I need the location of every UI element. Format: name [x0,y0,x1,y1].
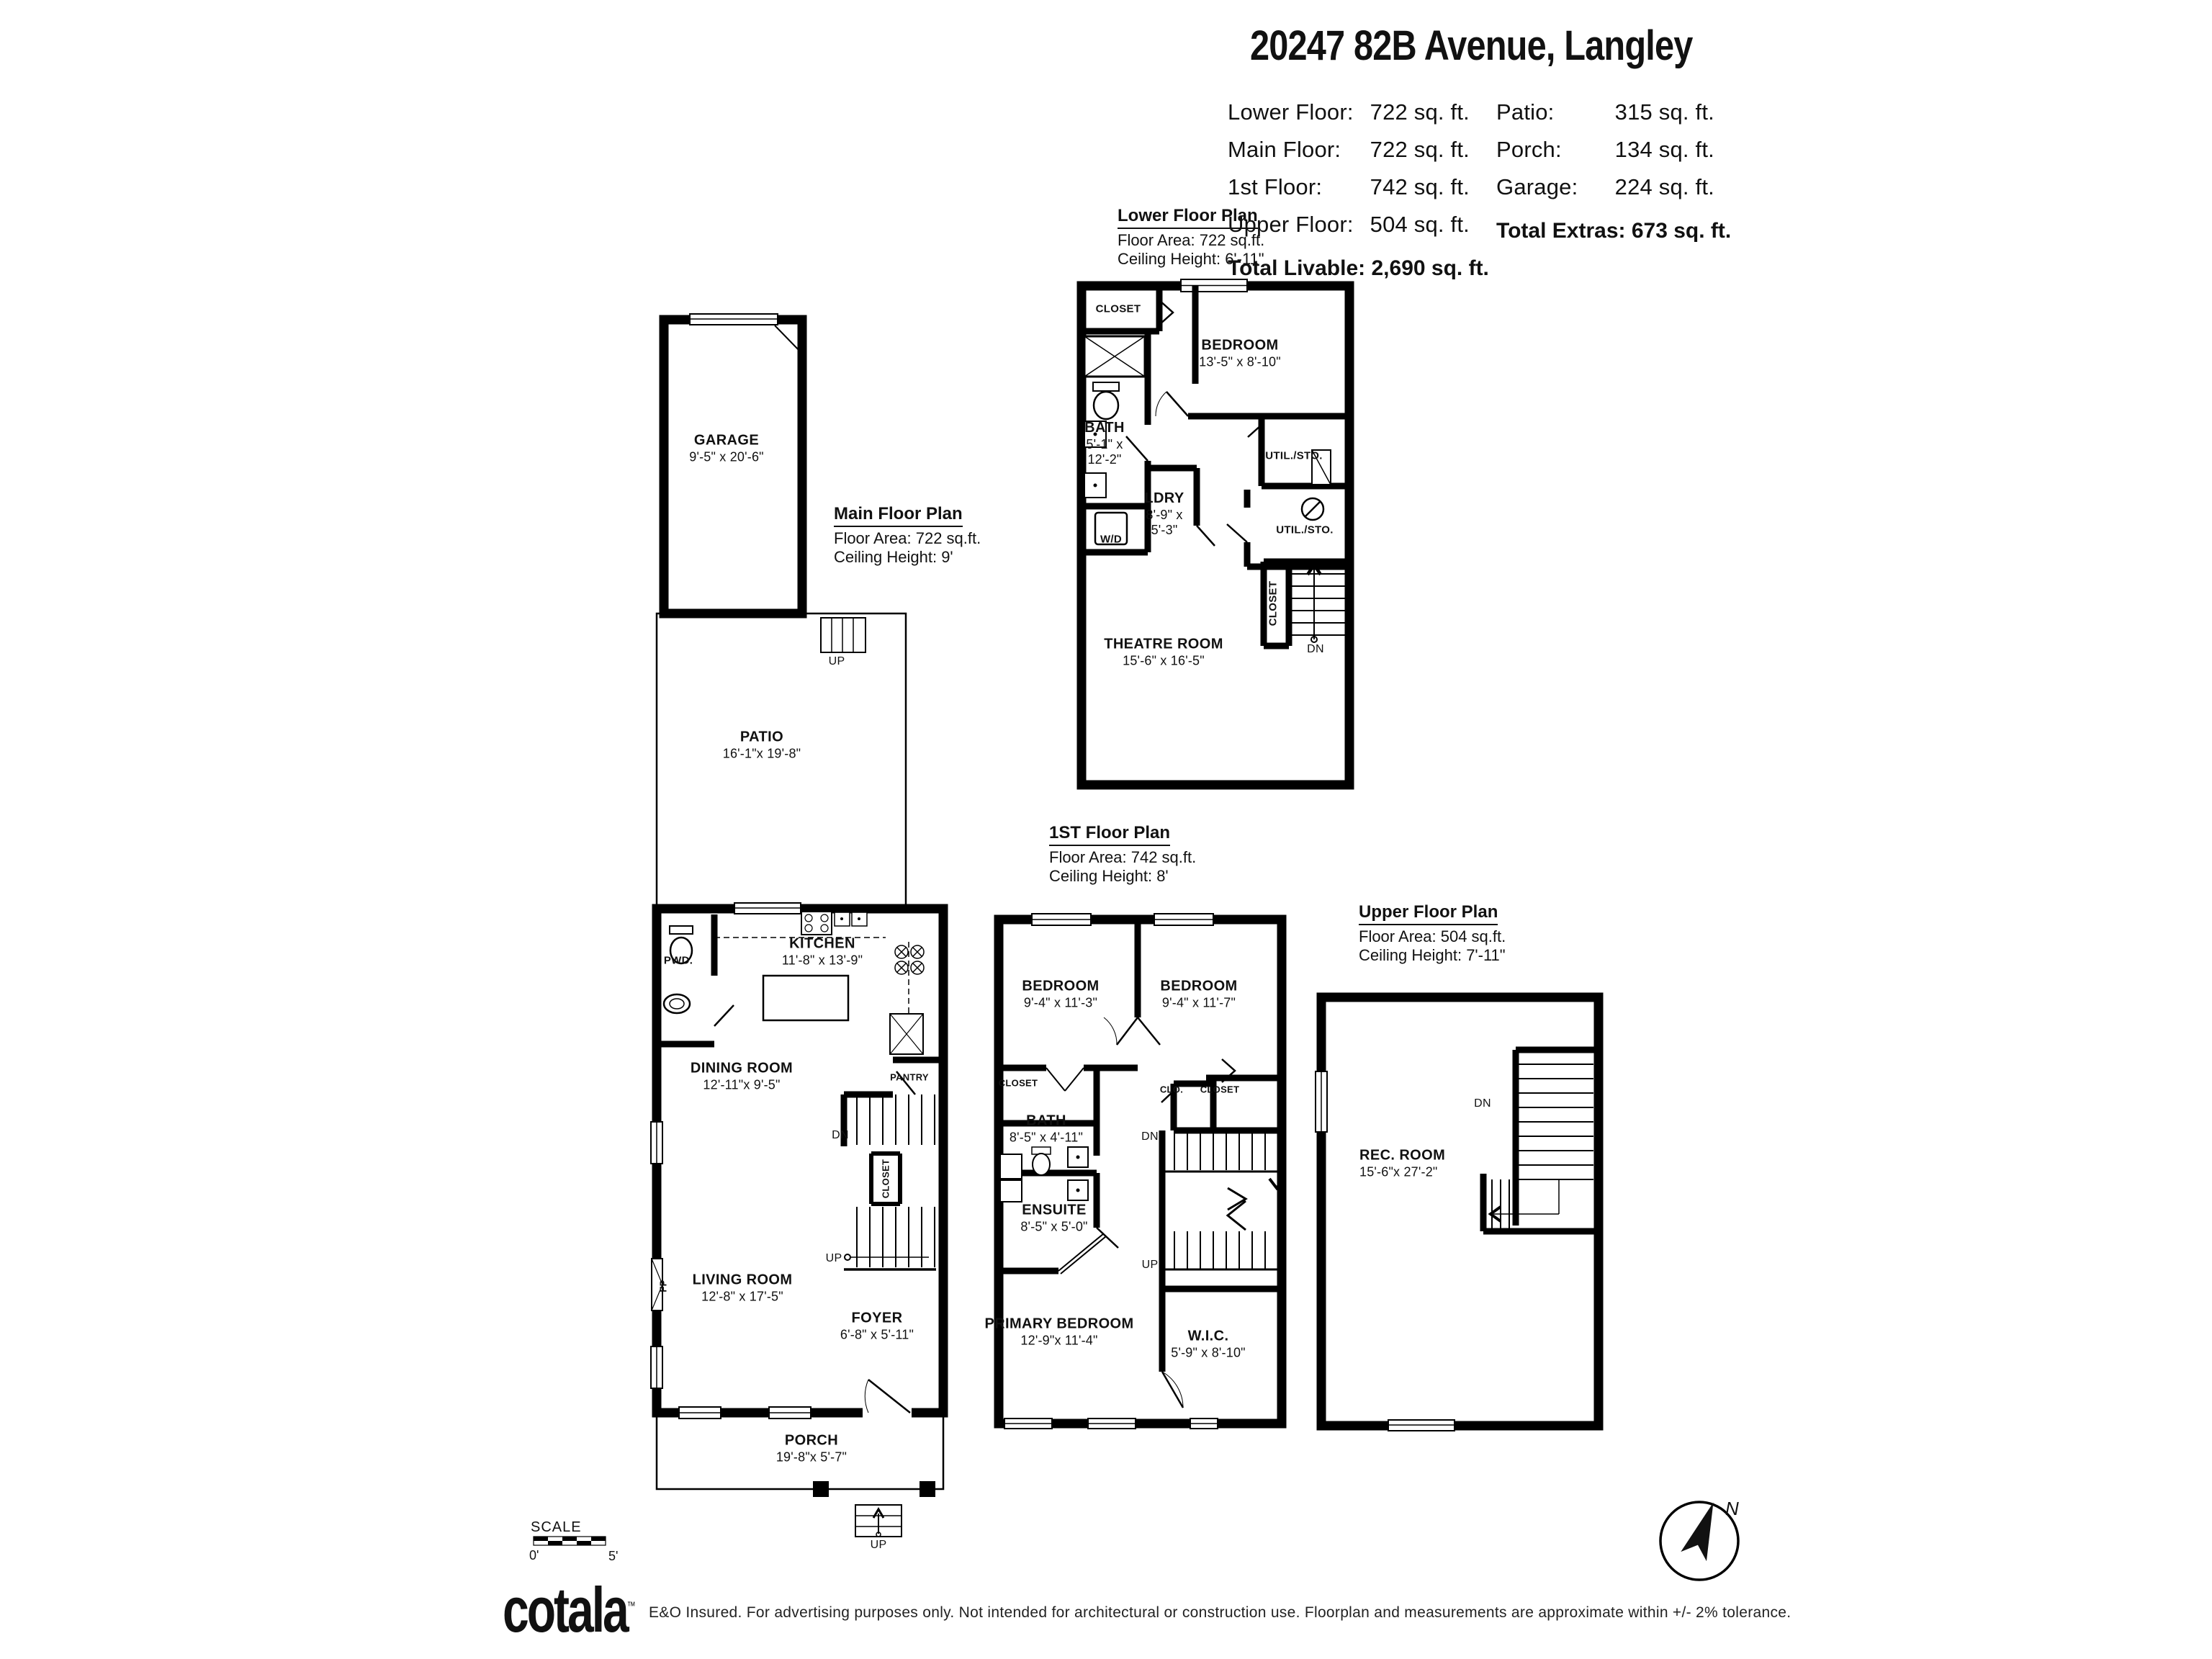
first-up-label: UP [1142,1259,1159,1272]
upper-floor-plan-drawing [1310,986,1613,1447]
bedroom1-label: BEDROOM 9'-4" x 11'-3" [1022,979,1099,1011]
patio-up-label: UP [829,655,845,668]
stat-value: 315 sq. ft. [1615,99,1714,125]
first-closet-left-label: CLOSET [999,1078,1038,1089]
util-sto-label-2: UTIL./STO. [1276,524,1333,536]
clo-label: CLO. [1160,1084,1183,1095]
stat-label: Patio: [1496,99,1554,125]
stat-label: 1st Floor: [1228,174,1322,200]
first-plan-header: 1ST Floor Plan Floor Area: 742 sq.ft. Ce… [1049,823,1196,886]
garage-label: GARAGE 9'-5" x 20'-6" [689,433,764,465]
stat-value: 722 sq. ft. [1370,137,1470,163]
main-up-label: UP [826,1252,842,1265]
dining-room-label: DINING ROOM 12'-11"x 9'-5" [691,1061,793,1093]
stat-value: 224 sq. ft. [1615,174,1714,200]
stat-row: Patio: 315 sq. ft. [1496,94,1714,131]
stat-label: Garage: [1496,174,1578,200]
kitchen-label: KITCHEN 11'-8" x 13'-9" [782,936,863,968]
stat-row: Garage: 224 sq. ft. [1496,168,1714,206]
living-room-label: LIVING ROOM 12'-8" x 17'-5" [693,1272,793,1305]
wic-label: W.I.C. 5'-9" x 8'-10" [1171,1328,1246,1361]
stat-row: Main Floor: 722 sq. ft. [1228,131,1470,168]
disclaimer-text: E&O Insured. For advertising purposes on… [649,1604,1791,1622]
wd-label: W/D [1100,534,1122,546]
scale-end: 5' [608,1549,618,1564]
porch-label: PORCH 19'-8"x 5'-7" [776,1433,847,1465]
bedroom2-label: BEDROOM 9'-4" x 11'-7" [1160,979,1237,1011]
scale-bar [534,1534,613,1550]
lower-stair-closet-label: CLOSET [1267,581,1280,626]
stats-right: Patio: 315 sq. ft. Porch: 134 sq. ft. Ga… [1496,94,1714,206]
ldry-label: LDRY 8'-9" x 5'-3" [1136,490,1193,538]
cotala-logo: cotala™ [503,1578,636,1642]
stat-label: Lower Floor: [1228,99,1354,125]
theatre-room-label: THEATRE ROOM 15'-6" x 16'-5" [1104,637,1223,669]
main-stair-closet-label: CLOSET [881,1159,891,1199]
lower-plan-header: Lower Floor Plan Floor Area: 722 sq.ft. … [1118,206,1264,269]
bath1-label: BATH 8'-5" x 4'-11" [1010,1113,1083,1146]
stat-label: Main Floor: [1228,137,1341,163]
stat-label: Porch: [1496,137,1562,163]
lower-bath-label: BATH 5'-1" x 12'-2" [1071,420,1139,467]
ensuite-label: ENSUITE 8'-5" x 5'-0" [1020,1202,1087,1235]
floorplan-page: 20247 82B Avenue, Langley Lower Floor: 7… [0,0,2212,1659]
main-dn-label: DN [832,1129,849,1142]
lower-closet-label: CLOSET [1096,303,1141,315]
primary-bedroom-label: PRIMARY BEDROOM 12'-9"x 11'-4" [984,1316,1133,1349]
first-closet-right-label: CLOSET [1200,1084,1240,1095]
trademark-symbol: ™ [627,1601,636,1613]
stat-row: Lower Floor: 722 sq. ft. [1228,94,1470,131]
scale-start: 0' [529,1548,539,1563]
first-dn-label: DN [1141,1130,1159,1143]
upper-plan-header: Upper Floor Plan Floor Area: 504 sq.ft. … [1359,902,1506,966]
patio-label: PATIO 16'-1"x 19'-8" [723,729,801,762]
pantry-label: PANTRY [890,1072,929,1083]
foyer-label: FOYER 6'-8" x 5'-11" [840,1310,914,1343]
compass-north-label: N [1725,1498,1739,1520]
pwd-label: PWD. [664,955,693,967]
total-extras: Total Extras: 673 sq. ft. [1496,219,1731,243]
lower-bedroom-label: BEDROOM 13'-5" x 8'-10" [1199,338,1281,370]
rec-room-label: REC. ROOM 15'-6"x 27'-2" [1359,1148,1445,1180]
stat-row: Porch: 134 sq. ft. [1496,131,1714,168]
stat-row: 1st Floor: 742 sq. ft. [1228,168,1470,206]
page-title: 20247 82B Avenue, Langley [1250,22,1692,70]
stat-value: 722 sq. ft. [1370,99,1470,125]
fireplace-label: FP [658,1280,669,1292]
util-sto-label: UTIL./STO. [1265,450,1322,462]
porch-up-label: UP [871,1539,887,1552]
stat-value: 504 sq. ft. [1370,212,1470,238]
stat-value: 134 sq. ft. [1615,137,1714,163]
stat-value: 742 sq. ft. [1370,174,1470,200]
upper-dn-label: DN [1474,1097,1491,1110]
lower-dn-label: DN [1307,643,1324,656]
